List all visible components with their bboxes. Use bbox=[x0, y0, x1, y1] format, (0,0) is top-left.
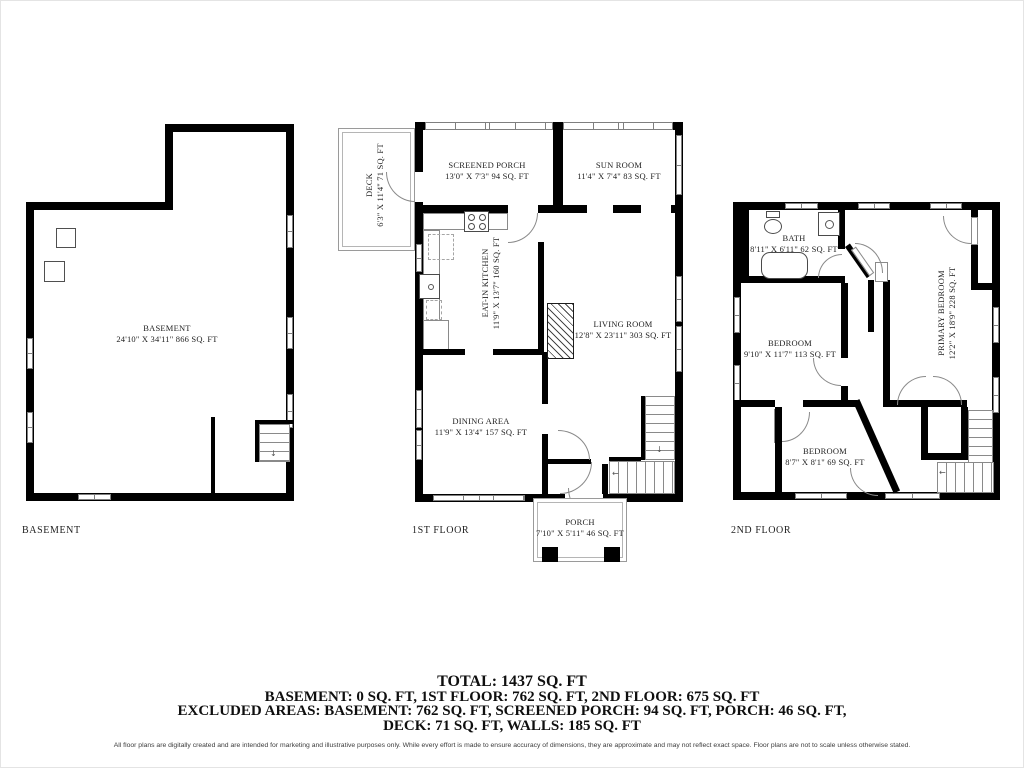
door-arc bbox=[943, 216, 971, 244]
porch-post bbox=[604, 547, 620, 562]
window bbox=[287, 215, 293, 248]
window bbox=[27, 412, 33, 443]
door-leaf bbox=[971, 217, 978, 245]
room-name: PORCH bbox=[536, 517, 624, 528]
wall bbox=[26, 202, 173, 210]
room-name: DECK bbox=[364, 143, 375, 227]
wall bbox=[971, 283, 1000, 290]
wall bbox=[538, 242, 544, 352]
door-opening bbox=[542, 404, 548, 434]
window bbox=[734, 297, 740, 333]
door-arc bbox=[782, 412, 810, 442]
disclaimer-text: All floor plans are digitally created an… bbox=[0, 742, 1024, 749]
screen-wall bbox=[563, 122, 673, 130]
plan-caption-basement: BASEMENT bbox=[22, 525, 81, 536]
plan-caption-first-floor: 1ST FLOOR bbox=[412, 525, 469, 536]
room-name: EAT-IN KITCHEN bbox=[480, 237, 491, 329]
door-arc bbox=[818, 254, 842, 278]
door-arc bbox=[855, 243, 883, 273]
room-label-screened-porch: SCREENED PORCH 13'0" X 7'3" 94 SQ. FT bbox=[445, 160, 529, 182]
wall bbox=[415, 122, 425, 130]
room-label-bedroom-left: BEDROOM 9'10" X 11'7" 113 SQ. FT bbox=[744, 338, 836, 360]
room-dims: 24'10" X 34'11" 866 SQ. FT bbox=[116, 334, 217, 345]
room-name: SCREENED PORCH bbox=[445, 160, 529, 171]
window bbox=[993, 377, 999, 413]
appliance-outline bbox=[426, 300, 442, 320]
wall bbox=[733, 400, 775, 407]
window bbox=[416, 244, 422, 272]
toilet-icon bbox=[766, 211, 780, 218]
window bbox=[676, 326, 682, 372]
room-dims: 11'9" X 13'4" 157 SQ. FT bbox=[435, 427, 527, 438]
staircase bbox=[937, 462, 994, 493]
room-label-primary-bedroom: PRIMARY BEDROOM 12'2" X 18'9" 228 SQ. FT bbox=[936, 267, 958, 360]
wall bbox=[553, 122, 563, 130]
wall bbox=[165, 124, 173, 210]
wall bbox=[921, 453, 968, 460]
refrigerator-icon bbox=[423, 320, 449, 351]
window bbox=[676, 135, 682, 195]
window bbox=[858, 203, 890, 209]
plan-caption-second-floor: 2ND FLOOR bbox=[731, 525, 791, 536]
room-label-porch: PORCH 7'10" X 5'11" 46 SQ. FT bbox=[536, 517, 624, 539]
stair-direction-arrow: ↓ bbox=[270, 450, 277, 458]
door-arc bbox=[897, 376, 926, 405]
wall bbox=[673, 122, 683, 130]
wall bbox=[165, 124, 294, 132]
wall-opening bbox=[465, 349, 493, 355]
toilet-icon bbox=[764, 219, 782, 234]
room-name: LIVING ROOM bbox=[575, 319, 672, 330]
sink-icon bbox=[419, 274, 440, 299]
window bbox=[676, 276, 682, 322]
support-post bbox=[56, 228, 76, 248]
bathtub-icon bbox=[761, 252, 808, 279]
room-name: BEDROOM bbox=[744, 338, 836, 349]
fireplace-icon bbox=[547, 303, 574, 359]
room-dims: 7'10" X 5'11" 46 SQ. FT bbox=[536, 528, 624, 539]
room-label-basement: BASEMENT 24'10" X 34'11" 866 SQ. FT bbox=[116, 323, 217, 345]
door-arc bbox=[508, 213, 538, 243]
room-name: SUN ROOM bbox=[577, 160, 661, 171]
door-arc bbox=[933, 376, 962, 405]
wall bbox=[883, 280, 890, 407]
wall bbox=[26, 493, 294, 501]
window bbox=[287, 317, 293, 349]
room-label-bath: BATH 8'11" X 6'11" 62 SQ. FT bbox=[750, 233, 838, 255]
appliance-outline bbox=[428, 234, 454, 260]
room-name: PRIMARY BEDROOM bbox=[936, 267, 947, 360]
wall bbox=[775, 407, 782, 493]
room-dims: 13'0" X 7'3" 94 SQ. FT bbox=[445, 171, 529, 182]
wall bbox=[803, 400, 857, 407]
room-label-kitchen: EAT-IN KITCHEN 11'9" X 13'7" 160 SQ. FT bbox=[480, 237, 502, 329]
wall-opening bbox=[587, 205, 613, 213]
wall bbox=[415, 130, 423, 172]
window bbox=[930, 203, 962, 209]
room-dims: 9'10" X 11'7" 113 SQ. FT bbox=[744, 349, 836, 360]
room-label-bedroom-bottom: BEDROOM 8'7" X 8'1" 69 SQ. FT bbox=[785, 446, 864, 468]
stair-direction-arrow: ↓ bbox=[656, 446, 663, 454]
screen-wall bbox=[425, 122, 553, 130]
window bbox=[885, 493, 940, 499]
room-name: DINING AREA bbox=[435, 416, 527, 427]
room-dims: 8'11" X 6'11" 62 SQ. FT bbox=[750, 244, 838, 255]
wall bbox=[992, 202, 1000, 500]
stair-direction-arrow: ← bbox=[939, 469, 946, 477]
room-label-dining-area: DINING AREA 11'9" X 13'4" 157 SQ. FT bbox=[435, 416, 527, 438]
room-label-deck: DECK 6'3" X 11'4" 71 SQ. FT bbox=[364, 143, 386, 227]
door-arc bbox=[813, 358, 841, 386]
window bbox=[27, 338, 33, 369]
room-dims: 12'2" X 18'9" 228 SQ. FT bbox=[947, 267, 958, 360]
door-arc bbox=[558, 430, 590, 460]
room-label-sun-room: SUN ROOM 11'4" X 7'4" 83 SQ. FT bbox=[577, 160, 661, 182]
room-dims: 12'8" X 23'11" 303 SQ. FT bbox=[575, 330, 672, 341]
wall bbox=[602, 464, 608, 494]
window bbox=[785, 203, 818, 209]
window bbox=[78, 494, 111, 500]
room-name: BEDROOM bbox=[785, 446, 864, 457]
door-opening bbox=[508, 205, 538, 213]
staircase bbox=[968, 410, 993, 463]
support-post bbox=[44, 261, 65, 282]
excluded-areas-text-2: DECK: 71 SQ. FT, WALLS: 185 SQ. FT bbox=[0, 718, 1024, 735]
wall bbox=[868, 280, 874, 332]
stove-icon bbox=[464, 211, 489, 232]
wall bbox=[211, 417, 215, 501]
room-label-living-room: LIVING ROOM 12'8" X 23'11" 303 SQ. FT bbox=[575, 319, 672, 341]
window bbox=[416, 390, 422, 428]
window bbox=[433, 495, 525, 501]
window bbox=[416, 430, 422, 460]
room-dims: 8'7" X 8'1" 69 SQ. FT bbox=[785, 457, 864, 468]
room-dims: 11'4" X 7'4" 83 SQ. FT bbox=[577, 171, 661, 182]
wall bbox=[841, 283, 848, 358]
window bbox=[993, 307, 999, 343]
wall bbox=[553, 130, 563, 205]
wall-opening bbox=[641, 205, 671, 213]
porch-post bbox=[542, 547, 558, 562]
wall bbox=[733, 210, 749, 283]
room-name: BATH bbox=[750, 233, 838, 244]
stair-direction-arrow: ← bbox=[612, 470, 619, 478]
room-dims: 6'3" X 11'4" 71 SQ. FT bbox=[375, 143, 386, 227]
floor-plan-sheet: ↓ BASEMENT 24'10" X 34'11" 866 SQ. FT BA… bbox=[0, 0, 1024, 768]
room-name: BASEMENT bbox=[116, 323, 217, 334]
room-dims: 11'9" X 13'7" 160 SQ. FT bbox=[491, 237, 502, 329]
window bbox=[795, 493, 847, 499]
window bbox=[734, 365, 740, 402]
